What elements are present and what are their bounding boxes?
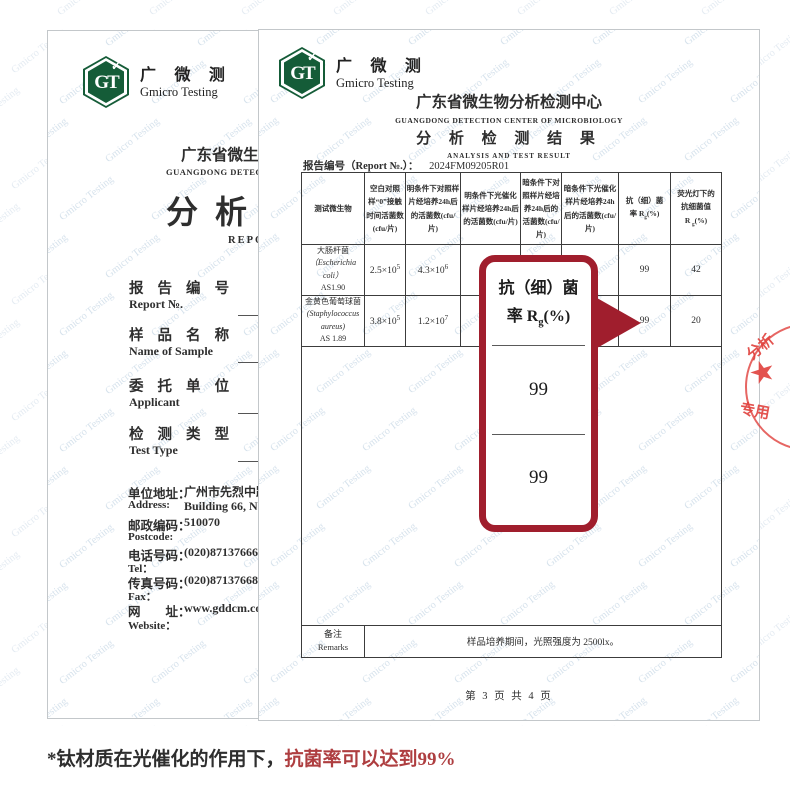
report-title-en: REPORT xyxy=(228,235,261,246)
field-applicant-cn: 委 托 单 位 xyxy=(129,375,234,396)
header-blank-control: 空白对照样“0”接触时间活菌数(cfu/片) xyxy=(365,173,406,245)
postcode-label-en: Postcode: xyxy=(128,531,173,543)
org-name-cn: 广东省微生物分析检测中心 xyxy=(181,143,261,165)
report-number-label: 报告编号（Report №.）： xyxy=(303,161,419,172)
gmicro-logo-icon: GT ✓ xyxy=(83,56,129,108)
value-cell: 4.3×106 xyxy=(406,245,461,296)
rate-cell: 99 xyxy=(619,245,671,296)
field-applicant-en: Applicant xyxy=(129,395,180,410)
report-number-value: 2024FM09205R01 xyxy=(429,161,509,172)
field-test-type-en: Test Type xyxy=(129,443,178,458)
field-test-type-cn: 检 测 类 型 xyxy=(129,423,234,444)
report-cover-page: Gmicro TestingGmicro TestingGmicro Testi… xyxy=(47,30,261,719)
header-dark-control: 暗条件下对照样片经培养24h后的活菌数(cfu/片) xyxy=(521,173,562,245)
value-cell: 1.2×107 xyxy=(406,295,461,346)
field-sample-name-cn: 样 品 名 称 xyxy=(129,324,234,345)
value-cell: 3.8×105 xyxy=(365,295,406,346)
caption-highlight: 抗菌率可以达到99% xyxy=(285,749,456,770)
field-report-no-cn: 报 告 编 号 xyxy=(129,277,234,298)
callout-value-1: 99 xyxy=(486,346,591,434)
org-name-en: GUANGDONG DETECTION CENTER OF MICROBIOLO… xyxy=(259,116,759,125)
remarks-row: 备注Remarks 样品培养期间，光照强度为 2500lx。 xyxy=(302,625,722,657)
callout-title: 抗（细）菌 率 Rg(%) xyxy=(486,262,591,345)
brand-name-cn: 广 微 测 xyxy=(336,52,428,76)
callout-arrow-icon xyxy=(597,298,641,348)
value-cell: 2.5×105 xyxy=(365,245,406,296)
result-title-cn: 分 析 检 测 结 果 xyxy=(259,127,759,148)
address-value-cn: 广州市先烈中路 xyxy=(184,483,261,500)
header-fluorescent-rate: 荧光灯下的抗细菌值R g(%) xyxy=(671,173,722,245)
header-light-control: 明条件下对照样片经培养24h后的活菌数(cfu/片) xyxy=(406,173,461,245)
brand-name-cn: 广 微 测 xyxy=(140,61,232,85)
report-title-cn: 分析检测 xyxy=(166,187,261,233)
website-value: www.gddcm.com xyxy=(184,601,261,616)
brand-name-en: Gmicro Testing xyxy=(140,85,218,100)
org-name-en: GUANGDONG DETECTION CENTER OF MICROBIOLO… xyxy=(166,167,261,177)
check-icon: ✓ xyxy=(111,59,121,74)
page-footer: 第 3 页 共 4 页 xyxy=(259,688,759,703)
organism-cell: 大肠杆菌（Escherichia coli）AS1.90 xyxy=(302,245,365,296)
check-icon: ✓ xyxy=(307,50,317,65)
field-sample-name-en: Name of Sample xyxy=(129,344,213,359)
header-organism: 测试微生物 xyxy=(302,173,365,245)
result-page: Gmicro TestingGmicro TestingGmicro Testi… xyxy=(258,29,760,721)
callout-value-2: 99 xyxy=(486,435,591,523)
org-name-cn: 广东省微生物分析检测中心 xyxy=(259,90,759,112)
address-label-en: Address: xyxy=(128,499,170,511)
highlight-callout-box: 抗（细）菌 率 Rg(%) 99 99 xyxy=(479,255,598,532)
header-light-photocatalyst: 明条件下光催化样片经培养24h后的活菌数(cfu/片) xyxy=(461,173,521,245)
header-dark-photocatalyst: 暗条件下光催化样片经培养24h后的活菌数(cfu/片) xyxy=(562,173,619,245)
address-value-en: Building 66, No. 1 xyxy=(184,499,261,514)
remarks-label: 备注Remarks xyxy=(302,625,365,657)
postcode-value: 510070 xyxy=(184,515,220,530)
fax-value: (020)87137668 xyxy=(184,573,258,588)
organism-cell: 金黄色葡萄球菌(Staphylococcus aureus)AS 1.89 xyxy=(302,295,365,346)
remarks-text: 样品培养期间，光照强度为 2500lx。 xyxy=(365,625,722,657)
field-report-no-en: Report №. xyxy=(129,297,183,312)
marketing-caption: *钛材质在光催化的作用下，抗菌率可以达到99% xyxy=(47,744,456,771)
fluor-cell: 20 xyxy=(671,295,722,346)
brand-name-en: Gmicro Testing xyxy=(336,76,414,91)
report-number-line: 报告编号（Report №.）： 2024FM09205R01 xyxy=(303,158,509,173)
table-header-row: 测试微生物 空白对照样“0”接触时间活菌数(cfu/片) 明条件下对照样片经培养… xyxy=(302,173,722,245)
header-antibacterial-rate: 抗（细）菌率 Rg(%) xyxy=(619,173,671,245)
website-label-en: Website： xyxy=(128,617,176,633)
caption-prefix: *钛材质在光催化的作用下， xyxy=(47,749,285,770)
tel-value: (020)87137666 xyxy=(184,545,258,560)
fluor-cell: 42 xyxy=(671,245,722,296)
